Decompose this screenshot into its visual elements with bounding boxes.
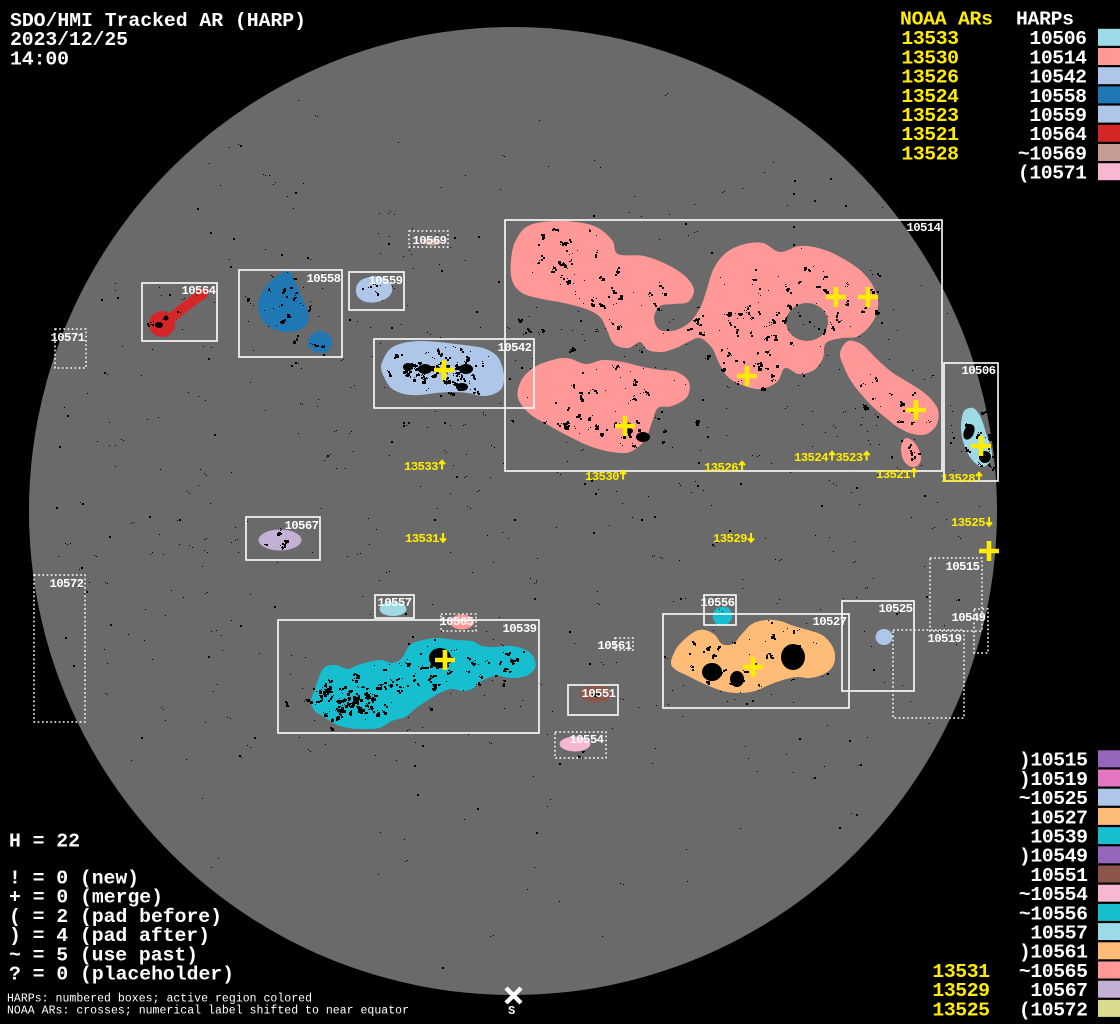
svg-text:13533: 13533 [404, 460, 439, 474]
svg-text:10558: 10558 [307, 272, 342, 286]
svg-text:10514: 10514 [907, 221, 942, 235]
svg-text:13521: 13521 [876, 468, 911, 482]
svg-text:13531: 13531 [405, 532, 440, 546]
svg-text:10559: 10559 [369, 274, 404, 288]
svg-text:10564: 10564 [182, 284, 217, 298]
svg-text:10525: 10525 [879, 602, 914, 616]
svg-text:10519: 10519 [928, 632, 963, 646]
svg-text:10527: 10527 [813, 615, 848, 629]
svg-text:13525: 13525 [932, 999, 990, 1021]
svg-text:10557: 10557 [378, 596, 413, 610]
svg-text:10515: 10515 [946, 560, 981, 574]
svg-text:(10572: (10572 [1019, 999, 1088, 1021]
svg-text:10506: 10506 [962, 364, 997, 378]
svg-text:13528: 13528 [941, 472, 976, 486]
svg-text:10561: 10561 [598, 639, 633, 653]
svg-text:10542: 10542 [498, 341, 533, 355]
svg-text:13524: 13524 [794, 451, 829, 465]
svg-text:NOAA ARs: crosses; numerical l: NOAA ARs: crosses; numerical label shift… [7, 1005, 409, 1018]
svg-text:13526: 13526 [704, 461, 739, 475]
svg-text:H = 22: H = 22 [9, 831, 80, 853]
svg-text:10572: 10572 [50, 577, 85, 591]
svg-text:13528: 13528 [901, 143, 959, 165]
svg-text:14:00: 14:00 [10, 48, 69, 70]
svg-text:13530: 13530 [585, 470, 620, 484]
svg-text:S: S [508, 1004, 515, 1018]
svg-text:10571: 10571 [51, 331, 86, 345]
svg-text:10565: 10565 [440, 615, 475, 629]
svg-text:10539: 10539 [503, 622, 538, 636]
svg-text:? = 0 (placeholder): ? = 0 (placeholder) [9, 964, 234, 986]
svg-text:10551: 10551 [582, 687, 617, 701]
svg-text:10567: 10567 [285, 519, 320, 533]
svg-text:(10571: (10571 [1018, 163, 1087, 185]
svg-text:10569: 10569 [413, 234, 448, 248]
svg-text:10554: 10554 [570, 733, 605, 747]
svg-text:10556: 10556 [701, 596, 736, 610]
svg-text:13525: 13525 [951, 516, 986, 530]
svg-text:3523: 3523 [836, 451, 864, 465]
svg-text:10549: 10549 [952, 611, 987, 625]
svg-text:13529: 13529 [713, 532, 748, 546]
